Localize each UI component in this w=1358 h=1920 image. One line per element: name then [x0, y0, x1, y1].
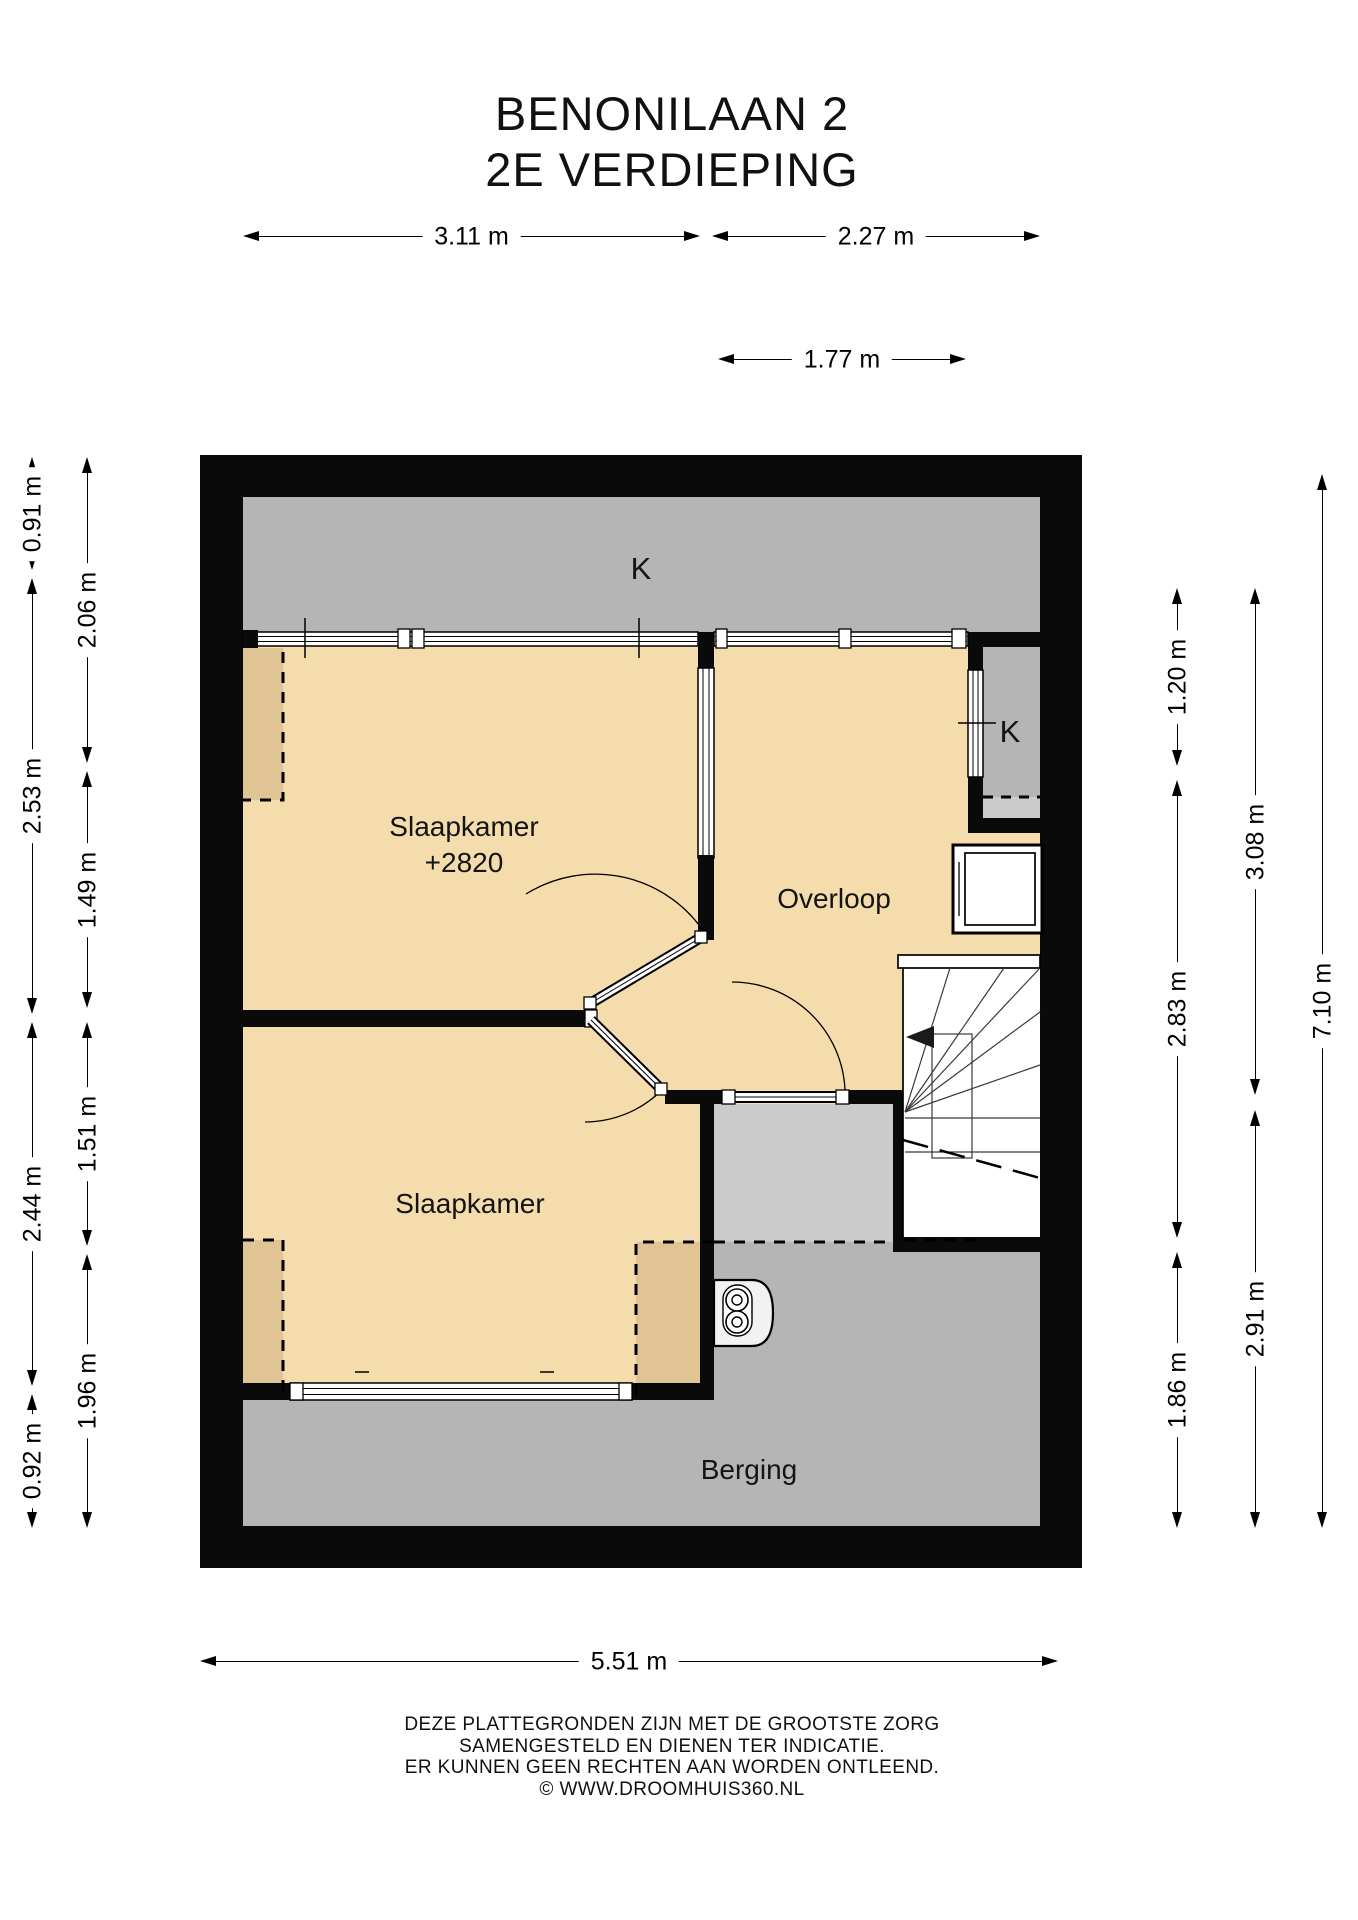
disclaimer-line-3: ER KUNNEN GEEN RECHTEN AAN WORDEN ONTLEE…: [0, 1757, 1344, 1779]
stairs: [898, 955, 1040, 1237]
disclaimer-line-1: DEZE PLATTEGRONDEN ZIJN MET DE GROOTSTE …: [0, 1714, 1344, 1736]
sloped-zone-bedroom1: [243, 648, 283, 800]
storage-fill-bottom: [243, 1397, 1040, 1526]
floorplan-drawing: K K Slaapkamer +2820 Overloop Slaapkamer…: [0, 0, 1358, 1920]
sloped-zone-bedroom2-left: [243, 1240, 283, 1397]
dim-right-middle-2: 2.91 m: [1249, 1110, 1262, 1528]
dim-right-outer: 7.10 m: [1316, 474, 1329, 1528]
boiler-icon: [714, 1280, 773, 1346]
wall-bedrooms: [243, 1010, 585, 1027]
floorplan-page: BENONILAAN 2 2E VERDIEPING: [0, 0, 1358, 1920]
dim-bottom-width: 5.51 m: [200, 1655, 1058, 1668]
dim-left-inner-2: 1.49 m: [81, 771, 94, 1008]
window-fixture: [953, 845, 1042, 933]
dim-left-inner-1: 2.06 m: [81, 457, 94, 763]
dim-left-outer-1: 0.91 m: [26, 457, 39, 570]
disclaimer-line-2: SAMENGESTELD EN DIENEN TER INDICATIE.: [0, 1736, 1344, 1758]
dim-top-landing: 2.27 m: [712, 230, 1040, 243]
label-bedroom1-area: +2820: [425, 847, 504, 878]
dim-left-outer-3: 2.44 m: [26, 1022, 39, 1386]
dim-right-inner-2: 2.83 m: [1171, 780, 1184, 1238]
wall-bedroom1-landing: [698, 632, 714, 940]
dim-top-row2: 1.77 m: [718, 353, 966, 366]
dim-right-inner-3: 1.86 m: [1171, 1252, 1184, 1528]
label-bedroom2: Slaapkamer: [395, 1188, 544, 1219]
label-closet-right: K: [1000, 714, 1021, 749]
vestibule-fill: [714, 1104, 893, 1242]
label-landing: Overloop: [777, 883, 891, 914]
dim-left-outer-2: 2.53 m: [26, 578, 39, 1014]
sloped-zone-bedroom2-right: [636, 1242, 700, 1397]
dim-left-inner-4: 1.96 m: [81, 1254, 94, 1528]
disclaimer: DEZE PLATTEGRONDEN ZIJN MET DE GROOTSTE …: [0, 1714, 1344, 1800]
label-storage: Berging: [701, 1454, 798, 1485]
dim-top-bedroom1: 3.11 m: [243, 230, 700, 243]
disclaimer-copyright: © WWW.DROOMHUIS360.NL: [0, 1779, 1344, 1801]
dim-right-middle-1: 3.08 m: [1249, 588, 1262, 1095]
dim-left-outer-4: 0.92 m: [26, 1394, 39, 1528]
label-bedroom1: Slaapkamer: [389, 811, 538, 842]
label-closet-top: K: [631, 551, 652, 586]
dim-left-inner-3: 1.51 m: [81, 1022, 94, 1246]
dim-right-inner-1: 1.20 m: [1171, 588, 1184, 766]
